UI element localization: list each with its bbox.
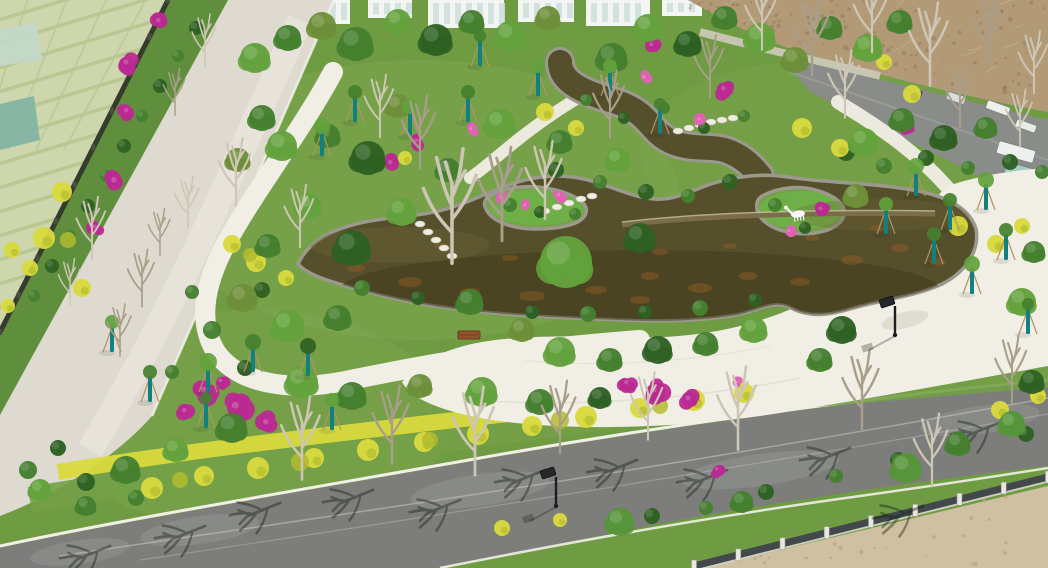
wall-post xyxy=(110,108,114,114)
tree-canopy-lobe xyxy=(619,519,634,534)
tree-canopy-lobe xyxy=(419,383,432,396)
deer-leg xyxy=(800,216,801,221)
shrub-highlight xyxy=(619,113,625,119)
dirt-clod xyxy=(914,53,917,56)
shrub-highlight xyxy=(46,260,53,267)
flower-highlight xyxy=(818,206,822,210)
canopy-highlight xyxy=(271,134,285,148)
tree-canopy-lobe xyxy=(1031,379,1044,392)
dirt-clod xyxy=(925,49,929,53)
staked-tree-canopy xyxy=(245,334,261,350)
tree-canopy-lobe xyxy=(905,464,922,481)
tree-canopy-lobe xyxy=(819,357,832,370)
dirt-clod xyxy=(973,61,976,64)
canopy-highlight xyxy=(276,313,290,327)
algae-patch xyxy=(805,235,819,241)
canopy-highlight xyxy=(1023,372,1034,383)
flower-tuft xyxy=(122,107,133,118)
canopy-highlight xyxy=(716,8,727,19)
flower-highlight xyxy=(156,18,161,23)
building-window xyxy=(567,3,573,18)
tree-canopy-lobe xyxy=(855,193,868,206)
tree-canopy-lobe xyxy=(281,142,298,159)
deer-leg xyxy=(797,216,798,221)
canopy-highlight xyxy=(392,201,405,214)
stepping-stone xyxy=(552,204,562,210)
canopy-highlight xyxy=(355,144,370,159)
yellow-shrub-dark xyxy=(60,232,76,248)
yellow-shrub-shade xyxy=(11,249,18,256)
building-window xyxy=(602,3,608,22)
dirt-clod xyxy=(772,21,775,24)
tree-canopy-lobe xyxy=(261,115,275,129)
tree-canopy-lobe xyxy=(899,19,912,32)
staked-tree-canopy xyxy=(879,197,893,211)
canopy-highlight xyxy=(221,416,235,430)
canopy-highlight xyxy=(167,440,178,451)
stepping-stone xyxy=(439,245,449,251)
tree-canopy-lobe xyxy=(321,23,336,38)
flower-tuft xyxy=(787,225,796,234)
sand-grain xyxy=(833,542,837,546)
fence-post xyxy=(780,538,785,550)
teal-trunk-guard xyxy=(353,96,357,122)
canopy-highlight xyxy=(893,110,904,121)
tree-canopy-lobe xyxy=(565,255,594,284)
flower-highlight xyxy=(715,467,719,471)
canopy-highlight xyxy=(547,241,570,264)
algae-patch xyxy=(723,243,737,249)
wall-post xyxy=(17,292,21,298)
stepping-stone xyxy=(673,128,683,134)
building-window xyxy=(406,3,412,14)
shrub-highlight xyxy=(800,223,806,229)
flower-highlight xyxy=(697,117,700,120)
canopy-highlight xyxy=(1002,414,1014,426)
dirt-clod xyxy=(774,29,776,31)
dirt-clod xyxy=(999,26,1003,30)
dirt-clod xyxy=(919,42,922,45)
yellow-shrub-shade xyxy=(1037,395,1044,402)
algae-patch xyxy=(519,291,545,301)
shrub-highlight xyxy=(769,199,776,206)
flower-tuft xyxy=(719,82,733,96)
tree-canopy-lobe xyxy=(327,133,340,146)
dirt-clod xyxy=(952,41,956,45)
dirt-clod xyxy=(836,4,838,6)
fence-post xyxy=(1001,482,1006,494)
shrub-highlight xyxy=(118,140,125,147)
shrub-highlight xyxy=(173,51,179,57)
shrub-highlight xyxy=(700,502,707,509)
yellow-shrub-shade xyxy=(366,448,376,458)
canopy-highlight xyxy=(549,340,563,354)
aerial-park-photo xyxy=(0,0,1048,568)
dirt-clod xyxy=(822,43,824,45)
teal-trunk-guard xyxy=(478,40,482,66)
canopy-highlight xyxy=(832,319,845,332)
canopy-highlight xyxy=(592,389,602,399)
canopy-highlight xyxy=(1026,243,1036,253)
yellow-shrub-dark xyxy=(422,432,438,448)
canopy-highlight xyxy=(32,481,42,491)
building-window xyxy=(624,3,630,22)
tree-canopy-lobe xyxy=(469,299,483,313)
tree-canopy-lobe xyxy=(471,19,484,32)
greenhouse-patch xyxy=(0,22,42,66)
dirt-clod xyxy=(1004,57,1007,60)
teal-trunk-guard xyxy=(658,108,662,134)
canopy-highlight xyxy=(343,30,358,45)
shrub-highlight xyxy=(20,462,29,471)
tree-canopy-lobe xyxy=(1033,249,1045,261)
tree-canopy-lobe xyxy=(521,327,534,340)
wall-post xyxy=(54,218,58,224)
dirt-clod xyxy=(743,22,746,25)
flower-highlight xyxy=(649,42,653,46)
stepping-stone xyxy=(728,115,738,121)
flower-highlight xyxy=(111,177,117,183)
shrub-highlight xyxy=(962,162,969,169)
canopy-highlight xyxy=(978,119,988,129)
sand-grain xyxy=(873,547,876,550)
dirt-clod xyxy=(979,22,982,25)
tree-canopy-lobe xyxy=(841,327,856,342)
dirt-clod xyxy=(709,2,712,5)
teal-trunk-guard xyxy=(932,238,936,264)
flower-highlight xyxy=(388,160,393,165)
yellow-shrub-shade xyxy=(29,267,36,274)
tree-canopy-lobe xyxy=(355,40,374,59)
dirt-clod xyxy=(958,31,962,35)
tree-canopy-lobe xyxy=(287,322,305,340)
canopy-highlight xyxy=(342,385,355,398)
tree-canopy-lobe xyxy=(547,15,560,28)
staked-tree-canopy xyxy=(1022,298,1034,310)
shrub-highlight xyxy=(526,306,533,313)
dirt-clod xyxy=(910,54,913,57)
dirt-clod xyxy=(1017,72,1021,76)
sand-grain xyxy=(753,556,757,560)
yellow-shrub-shade xyxy=(203,475,212,484)
shrub-highlight xyxy=(412,292,419,299)
building-window xyxy=(523,3,529,18)
yellow-shrub-shade xyxy=(584,415,594,425)
staked-tree-canopy xyxy=(348,85,362,99)
tree-canopy-lobe xyxy=(254,54,271,71)
flower-highlight xyxy=(92,224,96,228)
flower-tuft xyxy=(641,74,649,82)
wall-post xyxy=(35,255,39,261)
staked-tree-canopy xyxy=(300,338,316,354)
shrub-highlight xyxy=(204,322,213,331)
building-window xyxy=(341,3,347,20)
tree-canopy-lobe xyxy=(301,378,319,396)
staked-tree-canopy xyxy=(964,256,980,272)
canopy-highlight xyxy=(499,24,513,38)
building-window xyxy=(591,3,597,22)
tree-canopy-lobe xyxy=(863,139,878,154)
wall-post xyxy=(91,145,95,151)
shrub-highlight xyxy=(693,301,701,309)
algae-patch xyxy=(398,277,422,287)
teal-trunk-guard xyxy=(1004,234,1008,260)
dirt-clod xyxy=(976,10,979,13)
algae-patch xyxy=(739,272,757,280)
canopy-highlight xyxy=(854,131,867,144)
tree-canopy-lobe xyxy=(1011,421,1025,435)
yellow-shrub-shade xyxy=(150,486,160,496)
shrub-highlight xyxy=(1036,166,1043,173)
staked-tree-canopy xyxy=(603,59,617,73)
canopy-highlight xyxy=(312,15,325,28)
teal-trunk-guard xyxy=(330,404,334,430)
flower-tuft xyxy=(468,123,477,132)
canopy-highlight xyxy=(858,37,871,50)
dirt-clod xyxy=(789,13,792,16)
algae-patch xyxy=(641,272,659,280)
sand-grain xyxy=(932,535,936,539)
canopy-highlight xyxy=(463,12,474,23)
yellow-shrub-shade xyxy=(911,93,919,101)
dirt-clod xyxy=(843,21,845,23)
dirt-clod xyxy=(1026,76,1028,78)
dirt-clod xyxy=(749,1,751,3)
canopy-highlight xyxy=(609,150,620,161)
shrub-highlight xyxy=(1003,155,1011,163)
tree-canopy-lobe xyxy=(86,504,97,515)
shrub-highlight xyxy=(154,80,161,87)
flower-highlight xyxy=(182,408,187,413)
tree-canopy-lobe xyxy=(351,244,371,264)
flower-highlight xyxy=(469,127,472,130)
tree-canopy-lobe xyxy=(794,57,808,71)
yellow-shrub-shade xyxy=(883,61,890,68)
dirt-clod xyxy=(941,58,943,60)
shrub-highlight xyxy=(594,176,601,183)
flower-highlight xyxy=(721,86,726,91)
dirt-clod xyxy=(776,24,780,28)
staked-tree-canopy xyxy=(943,193,957,207)
sand-grain xyxy=(885,546,887,548)
dirt-clod xyxy=(931,36,936,41)
fence-post xyxy=(824,527,829,539)
stepping-stone xyxy=(423,229,433,235)
dirt-clod xyxy=(844,25,849,30)
dirt-clod xyxy=(693,2,695,4)
canopy-highlight xyxy=(1012,291,1025,304)
dirt-clod xyxy=(1012,79,1014,81)
dirt-clod xyxy=(689,4,691,6)
shrub-highlight xyxy=(51,441,59,449)
tree-canopy-lobe xyxy=(267,243,280,256)
flower-highlight xyxy=(218,378,222,382)
tree-canopy-lobe xyxy=(559,348,576,365)
dirt-clod xyxy=(913,64,918,69)
stepping-stone xyxy=(587,193,597,199)
sand-grain xyxy=(859,550,864,555)
canopy-highlight xyxy=(678,34,690,46)
canopy-highlight xyxy=(460,292,472,304)
building-window xyxy=(678,3,684,12)
canopy-highlight xyxy=(601,350,612,361)
flower-highlight xyxy=(787,229,790,232)
algae-patch xyxy=(891,244,909,252)
shrub-highlight xyxy=(830,470,837,477)
sand-grain xyxy=(767,556,770,559)
canopy-highlight xyxy=(648,339,661,352)
yellow-shrub-shade xyxy=(501,527,508,534)
canopy-highlight xyxy=(539,8,550,19)
staked-tree-canopy xyxy=(654,98,666,110)
dirt-clod xyxy=(702,1,704,3)
shrub-highlight xyxy=(190,22,197,29)
yellow-shrub-shade xyxy=(42,236,52,246)
tree-canopy-lobe xyxy=(367,154,386,173)
shrub-highlight xyxy=(639,185,647,193)
canopy-highlight xyxy=(424,27,438,41)
canopy-highlight xyxy=(934,128,946,140)
staked-tree-canopy xyxy=(200,392,212,404)
yellow-shrub-shade xyxy=(404,157,410,163)
canopy-highlight xyxy=(278,28,290,40)
yellow-shrub-shade xyxy=(81,287,89,295)
yellow-shrub-shade xyxy=(255,261,264,270)
shrub-highlight xyxy=(682,190,689,197)
tree-canopy-lobe xyxy=(599,395,611,407)
shrub-highlight xyxy=(355,281,363,289)
sand-grain xyxy=(1004,495,1008,499)
shrub-highlight xyxy=(877,159,885,167)
canopy-highlight xyxy=(489,112,503,126)
staked-tree-canopy xyxy=(474,30,486,42)
yellow-shrub-shade xyxy=(7,305,13,311)
dirt-clod xyxy=(886,48,890,52)
flower-tuft xyxy=(216,377,228,389)
algae-patch xyxy=(502,255,518,261)
wall-post xyxy=(0,329,2,335)
canopy-highlight xyxy=(411,376,422,387)
yellow-shrub-shade xyxy=(544,111,552,119)
shrub-highlight xyxy=(581,95,587,101)
tree-canopy-lobe xyxy=(435,36,453,54)
canopy-highlight xyxy=(949,434,960,445)
tree-canopy-lobe xyxy=(687,41,701,55)
staked-tree-canopy xyxy=(325,393,339,407)
sand-grain xyxy=(763,561,767,565)
sand-grain xyxy=(988,518,991,521)
canopy-highlight xyxy=(233,287,246,300)
canopy-highlight xyxy=(749,26,763,40)
dirt-clod xyxy=(943,42,945,44)
shrub-highlight xyxy=(137,111,143,117)
shrub-highlight xyxy=(723,175,731,183)
canopy-highlight xyxy=(697,334,708,345)
tree-canopy-lobe xyxy=(705,341,718,354)
fence-post xyxy=(957,493,962,505)
shrub-highlight xyxy=(759,485,767,493)
shrub-highlight xyxy=(255,283,263,291)
dirt-clod xyxy=(893,62,898,67)
tree-canopy-lobe xyxy=(287,35,301,49)
building-window xyxy=(488,3,494,24)
flower-cluster xyxy=(694,113,706,125)
dirt-clod xyxy=(934,73,936,75)
dirt-clod xyxy=(707,9,711,13)
yellow-shrub-shade xyxy=(285,277,292,284)
tree-canopy-lobe xyxy=(509,32,526,49)
tree-canopy-lobe xyxy=(175,447,188,460)
tree-canopy-lobe xyxy=(901,117,914,130)
dirt-clod xyxy=(778,20,781,23)
tree-canopy-lobe xyxy=(647,25,662,40)
canopy-highlight xyxy=(734,493,744,503)
yellow-shrub-shade xyxy=(801,127,810,136)
algae-patch xyxy=(688,283,712,293)
shrub-highlight xyxy=(749,294,756,301)
tree-canopy-lobe xyxy=(657,347,672,362)
staked-tree-canopy xyxy=(314,118,330,134)
dirt-clod xyxy=(1023,41,1027,45)
teal-trunk-guard xyxy=(948,204,952,230)
fence-post xyxy=(692,560,697,568)
dirt-clod xyxy=(1008,17,1010,19)
shrub-highlight xyxy=(166,366,173,373)
canopy-highlight xyxy=(244,46,258,60)
tree-canopy-lobe xyxy=(985,125,997,137)
staked-tree-canopy xyxy=(927,227,941,241)
tree-canopy-lobe xyxy=(39,487,51,499)
bench xyxy=(458,331,480,339)
canopy-highlight xyxy=(629,226,643,240)
shrub-highlight xyxy=(581,307,589,315)
building-window xyxy=(433,3,439,24)
dirt-clod xyxy=(732,3,736,7)
dirt-clod xyxy=(717,6,719,8)
building-window xyxy=(499,3,505,24)
tree-canopy-lobe xyxy=(957,441,970,454)
dirt-clod xyxy=(846,47,849,50)
dirt-clod xyxy=(698,2,701,5)
building-window xyxy=(444,3,450,24)
tree-canopy-lobe xyxy=(829,25,842,38)
staked-tree-canopy xyxy=(999,223,1013,237)
staked-tree-canopy xyxy=(978,172,994,188)
dirt-clod xyxy=(830,11,833,14)
canopy-highlight xyxy=(388,12,400,24)
canopy-highlight xyxy=(847,186,858,197)
canopy-highlight xyxy=(389,96,400,107)
shrub-highlight xyxy=(129,491,137,499)
building-window xyxy=(667,3,673,12)
teal-trunk-guard xyxy=(148,376,152,402)
staked-tree-canopy xyxy=(199,353,217,371)
teal-trunk-guard xyxy=(1026,308,1030,334)
staked-tree-canopy xyxy=(461,85,475,99)
flower-highlight xyxy=(557,193,561,197)
canopy-highlight xyxy=(895,456,909,470)
canopy-highlight xyxy=(339,234,355,250)
dirt-clod xyxy=(805,31,809,35)
tree-canopy-lobe xyxy=(401,209,416,224)
tree-canopy-lobe xyxy=(867,45,882,60)
dirt-clod xyxy=(904,69,906,71)
wall-post xyxy=(73,181,77,187)
canopy-highlight xyxy=(811,350,822,361)
algae-patch xyxy=(585,286,607,294)
tree-canopy-lobe xyxy=(609,357,622,370)
stepping-stone xyxy=(717,117,727,123)
